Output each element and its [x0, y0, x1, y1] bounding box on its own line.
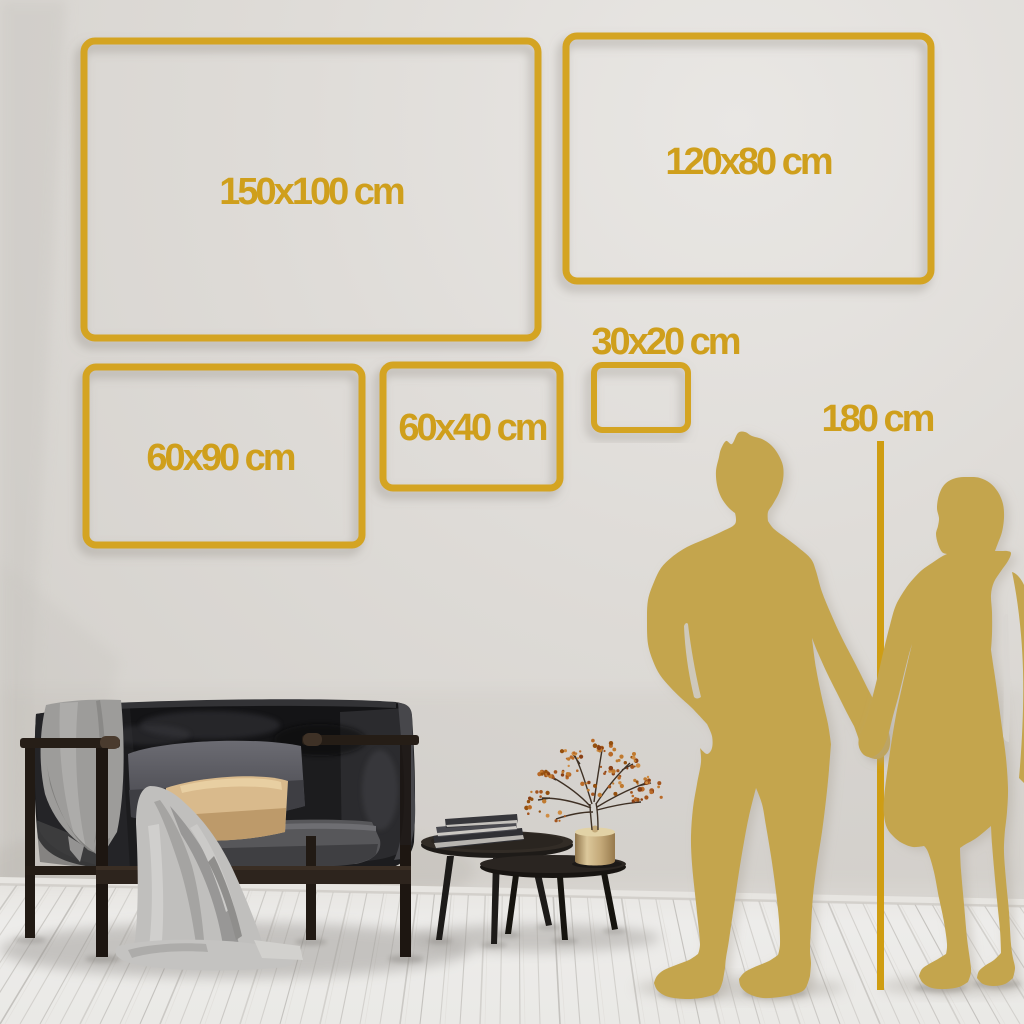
svg-text:150x100 cm: 150x100 cm: [219, 171, 404, 213]
svg-text:30x20 cm: 30x20 cm: [591, 321, 739, 363]
svg-text:120x80 cm: 120x80 cm: [665, 141, 831, 183]
svg-text:60x90 cm: 60x90 cm: [146, 437, 294, 479]
svg-text:60x40 cm: 60x40 cm: [398, 407, 546, 449]
svg-text:180 cm: 180 cm: [822, 398, 934, 440]
